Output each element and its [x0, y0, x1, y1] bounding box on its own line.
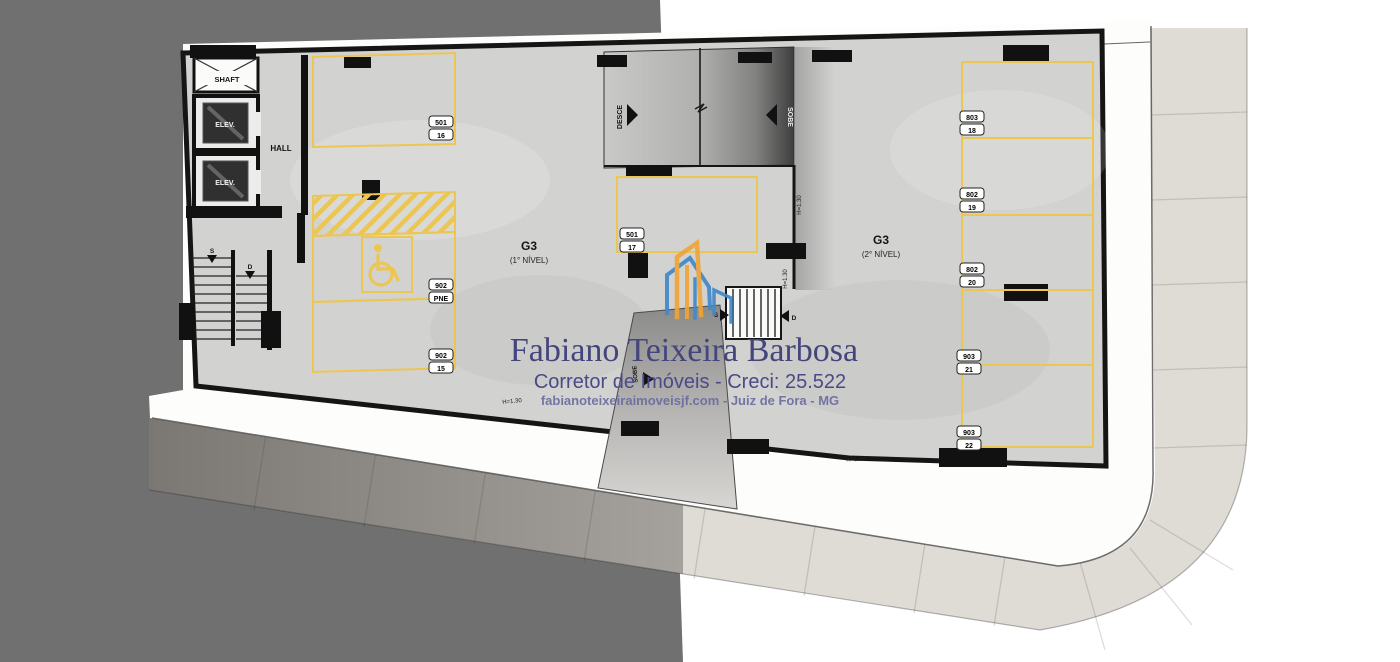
svg-text:15: 15 — [437, 366, 445, 373]
svg-text:501: 501 — [626, 232, 638, 239]
watermark-subtitle: Corretor de Imóveis - Creci: 25.522 — [534, 371, 846, 393]
elevator-door-gap — [256, 170, 261, 194]
svg-text:20: 20 — [968, 280, 976, 287]
svg-text:22: 22 — [965, 443, 973, 450]
stair-up-label: S — [210, 248, 215, 255]
watermark-title: Fabiano Teixeira Barbosa — [510, 332, 858, 369]
hall-wall — [301, 55, 308, 215]
watermark-website: fabianoteixeiraimoveisjf.com - Juiz de F… — [541, 393, 839, 408]
svg-text:21: 21 — [965, 367, 973, 374]
stair-down-label: D — [248, 264, 253, 271]
svg-text:501: 501 — [435, 120, 447, 127]
level-name: (1° NÍVEL) — [510, 256, 549, 265]
level-name: (2° NÍVEL) — [862, 250, 901, 259]
svg-text:802: 802 — [966, 192, 978, 199]
clearance-label: H=1.30 — [783, 269, 789, 289]
svg-text:903: 903 — [963, 354, 975, 361]
ramp-desce-label: DESCE — [617, 105, 624, 129]
level-code: G3 — [873, 233, 889, 247]
svg-text:803: 803 — [966, 115, 978, 122]
core-wall — [186, 206, 282, 218]
level-code: G3 — [521, 239, 537, 253]
clearance-label: H=1.30 — [846, 457, 866, 464]
svg-text:903: 903 — [963, 430, 975, 437]
svg-text:902: 902 — [435, 353, 447, 360]
svg-text:16: 16 — [437, 133, 445, 140]
svg-text:18: 18 — [968, 128, 976, 135]
hall-wall — [297, 213, 305, 263]
hall-label: HALL — [270, 144, 291, 153]
ramp-sobe-label: SOBE — [786, 107, 793, 127]
svg-text:19: 19 — [968, 205, 976, 212]
svg-text:902: 902 — [435, 283, 447, 290]
floor-plan-svg: DESCE SOBE H=1.30 H=1.30 H=1.30 H=1.30 S… — [0, 0, 1400, 662]
clearance-label: H=1.30 — [797, 195, 803, 215]
ramp-upper: DESCE SOBE — [604, 47, 794, 168]
no-parking-hatch — [313, 192, 455, 236]
shaft-room: SHAFT — [194, 58, 258, 92]
svg-text:802: 802 — [966, 267, 978, 274]
floor-plan-scene: DESCE SOBE H=1.30 H=1.30 H=1.30 H=1.30 S… — [0, 0, 1400, 662]
elevator-label: ELEV. — [215, 122, 235, 129]
elevator-room: ELEV. — [194, 96, 258, 150]
svg-text:PNE: PNE — [434, 296, 449, 303]
elevator-door-gap — [256, 112, 261, 136]
elevator-label: ELEV. — [215, 180, 235, 187]
stair-down-label: D — [792, 315, 797, 322]
wall-column — [190, 45, 256, 58]
svg-text:17: 17 — [628, 245, 636, 252]
elevator-room: ELEV. — [194, 154, 258, 208]
shaft-label: SHAFT — [215, 75, 240, 84]
